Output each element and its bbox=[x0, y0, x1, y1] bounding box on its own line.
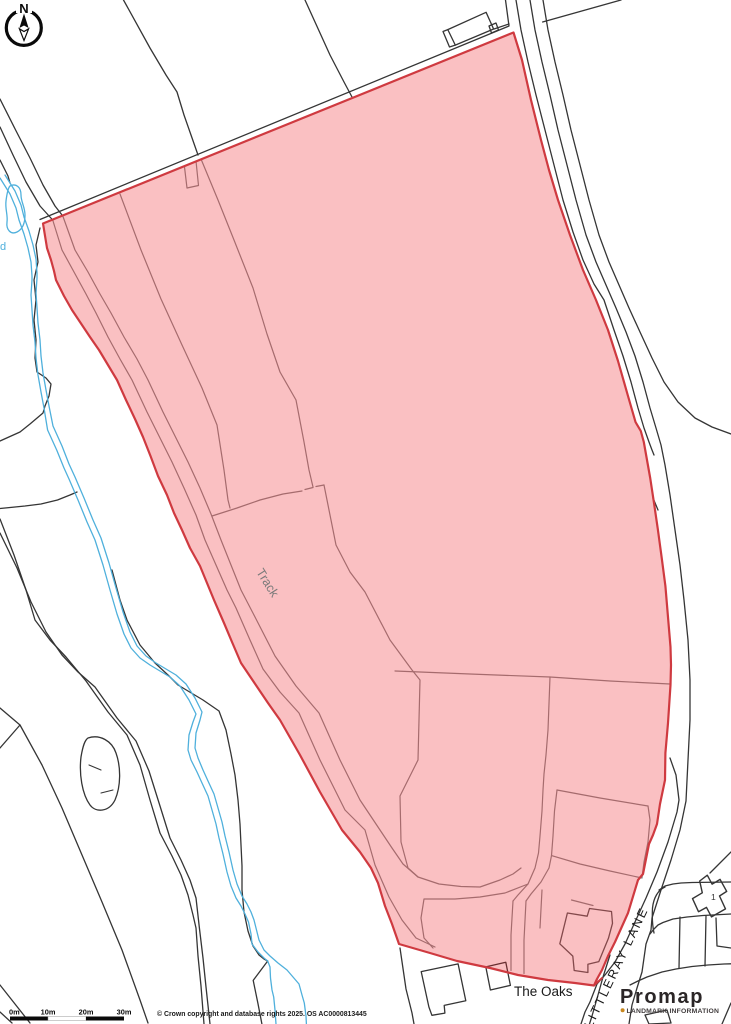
svg-text:10m: 10m bbox=[41, 1008, 56, 1017]
svg-text:0m: 0m bbox=[9, 1008, 20, 1017]
svg-text:© Crown copyright and database: © Crown copyright and database rights 20… bbox=[157, 1010, 367, 1018]
svg-text:d: d bbox=[0, 241, 6, 253]
svg-text:1: 1 bbox=[711, 892, 716, 902]
svg-text:LANDMARK INFORMATION: LANDMARK INFORMATION bbox=[627, 1008, 720, 1015]
svg-text:Promap: Promap bbox=[620, 986, 704, 1008]
svg-text:20m: 20m bbox=[79, 1008, 94, 1017]
svg-text:30m: 30m bbox=[117, 1008, 132, 1017]
svg-text:The Oaks: The Oaks bbox=[514, 984, 573, 999]
